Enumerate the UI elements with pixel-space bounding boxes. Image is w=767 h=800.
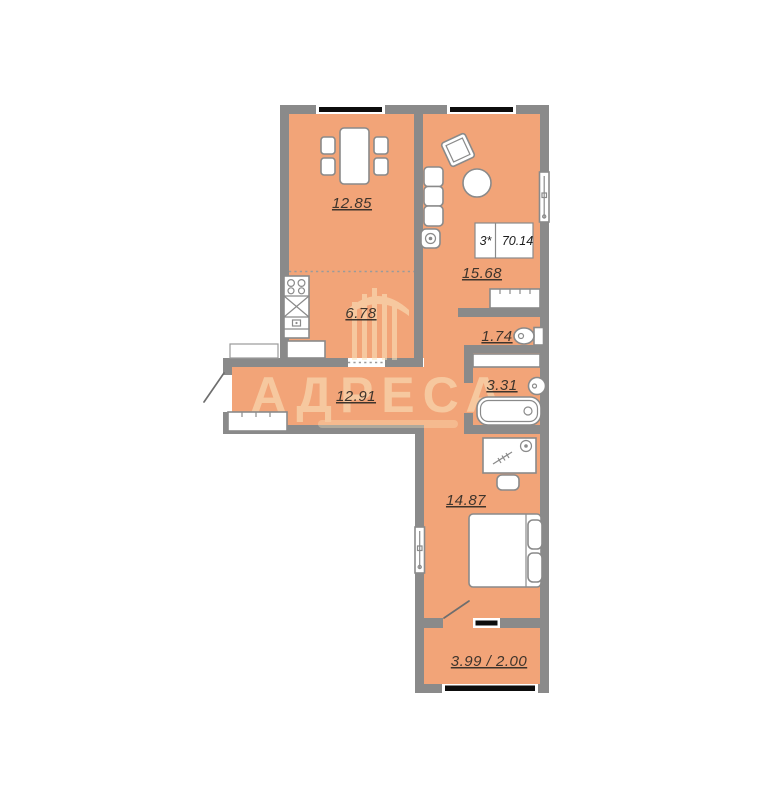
- wall-hallway-top-right: [385, 358, 423, 367]
- room-dining-label: 12.85: [332, 195, 372, 212]
- bathroom-shelf: [473, 354, 540, 367]
- entrance-door-leaf: [204, 373, 224, 402]
- room-bathroom-label: 3.31: [486, 377, 517, 394]
- kitchen-small-unit-dot: [295, 322, 297, 324]
- sofa-cushion: [424, 167, 443, 187]
- adjacent-structure: [230, 344, 278, 358]
- watermark-bar: [392, 302, 397, 360]
- toilet-tank: [534, 328, 544, 346]
- bedroom-radiator: [415, 527, 425, 573]
- apartment-info-box: 3* 70.14: [475, 223, 533, 258]
- wall-living-bottom: [458, 308, 549, 317]
- sofa-cushion: [424, 206, 443, 226]
- balcony-window: [445, 686, 535, 692]
- bedroom-balcony-window: [476, 621, 498, 626]
- desk: [483, 438, 536, 473]
- info-box-area: 70.14: [502, 234, 533, 248]
- toilet-fixture: [514, 328, 544, 346]
- wall-bathroom-bedroom-divider: [464, 425, 549, 434]
- info-box-rooms: 3*: [480, 234, 493, 248]
- floor-plan: АДРЕСА: [0, 0, 767, 800]
- cabinet-body: [490, 289, 540, 308]
- dining-chair: [374, 158, 388, 175]
- dining-chair: [321, 158, 335, 175]
- bed-pillow: [528, 553, 542, 582]
- wall-bedroom-balcony-left: [415, 618, 443, 628]
- bed-pillow: [528, 520, 542, 549]
- watermark-bar: [382, 294, 387, 360]
- living-cabinet: [490, 289, 540, 308]
- hallway-closet: [228, 412, 287, 431]
- bed: [469, 514, 542, 587]
- wall-bedroom-balcony-right: [500, 618, 540, 628]
- dining-chair: [321, 137, 335, 154]
- room-bedroom-label: 14.87: [446, 492, 486, 509]
- living-radiator: [540, 172, 550, 222]
- room-living-label: 15.68: [462, 265, 502, 282]
- dining-chair: [374, 137, 388, 154]
- closet-body: [228, 412, 287, 431]
- sofa-cushion: [424, 187, 443, 207]
- wall-toilet-bathroom-divider: [464, 345, 549, 353]
- floor-plan-page: АДРЕСА: [0, 0, 767, 800]
- room-toilet-label: 1.74: [481, 328, 512, 345]
- room-balcony-label: 3.99 / 2.00: [451, 653, 528, 670]
- dining-table: [340, 128, 369, 184]
- round-table: [463, 169, 491, 197]
- room-kitchen-label: 6.78: [345, 305, 376, 322]
- kitchen-counter: [287, 341, 325, 358]
- watermark-bar: [362, 294, 367, 360]
- living-window: [450, 107, 513, 112]
- watermark-slogan-bar: [318, 420, 458, 428]
- wall-hallway-top-left: [223, 358, 348, 367]
- room-hallway-label: 12.91: [336, 388, 376, 405]
- watermark-bar: [372, 288, 377, 360]
- dining-window: [319, 107, 382, 112]
- desk-chair: [497, 475, 519, 490]
- desk-lamp-dot: [524, 444, 528, 448]
- watermark-text: АДРЕСА: [250, 367, 509, 423]
- tv-unit-dot: [429, 237, 433, 241]
